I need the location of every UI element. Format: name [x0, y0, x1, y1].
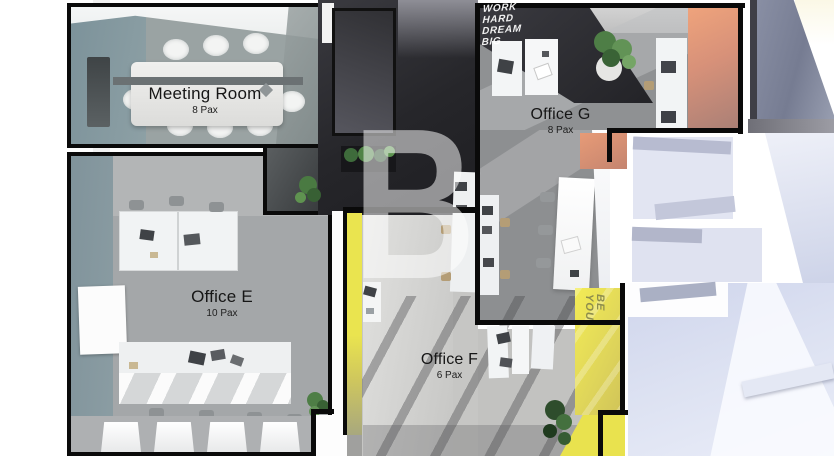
meeting-room-label: Meeting Room 8 Pax — [130, 84, 280, 116]
motivational-wall-text: WORK HARD DREAM BIG — [481, 1, 522, 48]
office-chair — [500, 270, 510, 279]
chair — [203, 35, 229, 56]
room-name: Meeting Room — [130, 84, 280, 104]
desk-sunlit-half — [119, 373, 291, 404]
orange-accent-wall-small — [580, 133, 627, 169]
room-capacity: 6 Pax — [392, 370, 507, 382]
desk-item — [542, 51, 549, 57]
laptop — [497, 59, 514, 74]
wall-border — [311, 409, 316, 456]
laptop — [230, 354, 244, 367]
office-f-label: Office F 6 Pax — [392, 351, 507, 382]
gray-bar — [748, 119, 834, 133]
room-name: Office G — [503, 106, 618, 124]
plant — [307, 188, 321, 202]
border-notch-fill — [316, 415, 332, 456]
wall-border — [598, 410, 603, 456]
laptop — [210, 349, 226, 361]
desk-bottom — [154, 422, 194, 452]
meeting-room — [67, 3, 322, 148]
laptop — [661, 61, 676, 73]
laptop — [661, 111, 676, 123]
desk-row-top — [119, 211, 238, 271]
stair-fold — [632, 227, 702, 243]
laptop — [183, 233, 200, 246]
laptop — [139, 229, 154, 241]
plant — [295, 192, 306, 203]
plant — [622, 55, 636, 69]
office-chair — [209, 202, 224, 212]
room-capacity: 8 Pax — [130, 105, 280, 117]
office-floor-plan: Meeting Room 8 Pax — [0, 0, 834, 456]
lavender-room — [628, 283, 834, 456]
chair — [163, 39, 189, 60]
orange-accent-wall — [688, 5, 742, 130]
wall-border — [475, 320, 625, 325]
watermark-letter: B — [352, 96, 476, 311]
desk-row-middle — [119, 342, 291, 404]
office-chair — [169, 196, 184, 206]
be-you-wall-text: BE YOU — [583, 294, 605, 321]
plant — [543, 424, 557, 438]
office-chair — [536, 258, 551, 268]
desk-bottom — [260, 422, 300, 452]
dark-edge-strip — [750, 0, 757, 131]
room-capacity: 8 Pax — [503, 125, 618, 137]
office-chair — [129, 200, 144, 210]
wall-border — [620, 283, 625, 415]
desk-item — [129, 362, 138, 369]
room-name: Office F — [392, 351, 507, 369]
desk-item — [150, 252, 158, 258]
wall-border — [738, 3, 743, 134]
yellow-accent-wall-beyou: BE YOU — [575, 288, 625, 415]
office-chair — [540, 192, 555, 202]
laptop — [570, 270, 579, 277]
floor-below-yellow — [347, 435, 362, 456]
office-chair — [538, 225, 553, 235]
plant — [556, 414, 572, 430]
plant — [558, 432, 571, 445]
plant — [602, 49, 620, 67]
tv-screen — [87, 57, 110, 127]
light-band — [398, 0, 478, 58]
office-chair — [644, 81, 654, 90]
office-g-label: Office G 8 Pax — [503, 106, 618, 137]
desk-divider — [177, 212, 179, 270]
office-e-label: Office E 10 Pax — [157, 287, 287, 319]
laptop — [482, 226, 492, 234]
room-name: Office E — [157, 287, 287, 307]
lavender-wall-wedge — [765, 133, 834, 283]
dark-corridor — [263, 148, 318, 215]
laptop — [483, 258, 494, 267]
desk-f — [531, 324, 555, 369]
room-capacity: 10 Pax — [157, 308, 287, 320]
wall-border — [607, 128, 743, 133]
chair — [243, 33, 269, 54]
desk-f — [512, 326, 529, 374]
laptop — [482, 206, 493, 215]
office-chair — [500, 218, 510, 227]
desk-bottom — [207, 422, 247, 452]
laptop — [188, 350, 206, 365]
desk-bottom — [101, 422, 141, 452]
wall-border — [343, 207, 347, 435]
